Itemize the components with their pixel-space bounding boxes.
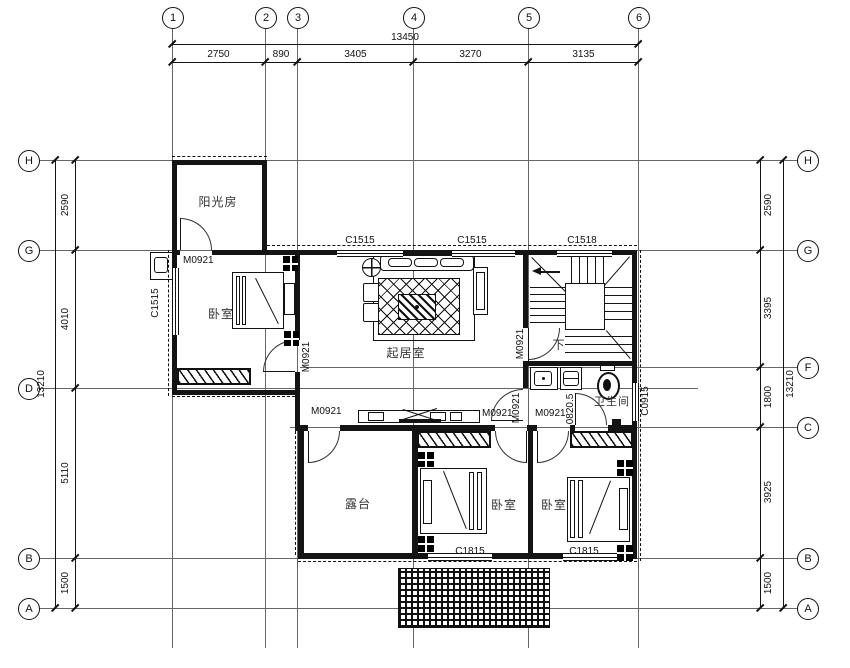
dim-right-seg: 1800 [764, 372, 774, 422]
dim-left-seg: 4010 [61, 294, 71, 344]
coffee-table-dot [415, 305, 419, 309]
wall [262, 160, 267, 250]
column-marker [418, 452, 434, 467]
door-label-m0820: 0820.5 [566, 384, 576, 434]
axis-bubble-G-left: G [18, 240, 40, 262]
room-label-bathroom: 卫生间 [588, 396, 636, 409]
room-label-bedroom: 卧室 [201, 308, 241, 321]
stair-tread [605, 311, 632, 312]
room-label-bedroom: 卧室 [534, 499, 574, 512]
column-marker [418, 536, 434, 552]
window-label-c1815: C1815 [450, 547, 490, 557]
door-leaf [308, 431, 309, 463]
dim-line-right-total [783, 160, 784, 608]
tv-cabinet-drawer [450, 412, 462, 421]
eave-dashed-line [298, 561, 637, 563]
sofa-cushion [388, 258, 412, 267]
door-leaf [526, 431, 527, 463]
wall-niche-inner [154, 257, 168, 273]
window-c1515 [172, 268, 179, 335]
dim-line-top-segments [172, 62, 638, 63]
wall [295, 372, 300, 431]
stair-tread [605, 295, 632, 296]
armchair-cushion [476, 272, 485, 310]
dim-top-seg: 3405 [333, 50, 378, 60]
window-c1515 [452, 250, 515, 257]
toilet-bowl-inner [603, 379, 611, 391]
stair-tread [595, 255, 596, 283]
axis-label: 1 [170, 12, 176, 24]
window-c1515 [337, 250, 403, 257]
washing-machine-line [563, 378, 579, 379]
stair-tread [530, 308, 565, 309]
door-arc [495, 431, 527, 463]
dresser [177, 368, 251, 385]
wall [172, 335, 177, 395]
dim-left-total: 13210 [37, 359, 47, 409]
dim-right-seg: 3395 [764, 283, 774, 333]
dim-top-seg: 2750 [196, 50, 241, 60]
stair-tread [605, 287, 632, 288]
axis-label: A [25, 603, 32, 615]
wall [212, 250, 337, 255]
axis-label: H [804, 155, 812, 167]
door-label-m0921: M0921 [302, 332, 312, 382]
axis-label: 4 [411, 12, 417, 24]
stair-tread [603, 255, 604, 283]
door-label-m0921: M0921 [311, 407, 357, 417]
stair-tread [530, 315, 565, 316]
eave-dashed-line [172, 156, 267, 158]
grid-line-2 [265, 28, 266, 648]
entrance-grille [398, 568, 550, 628]
dim-right-seg: 2590 [764, 180, 774, 230]
axis-bubble-A-left: A [18, 598, 40, 620]
axis-label: C [804, 422, 812, 434]
door-leaf [537, 431, 538, 463]
axis-label: G [804, 245, 813, 257]
axis-bubble-G-right: G [797, 240, 819, 262]
column-marker [617, 460, 633, 476]
door-arc [180, 218, 212, 250]
dim-top-total: 13450 [380, 33, 430, 43]
room-label-terrace: 露台 [336, 498, 380, 511]
wall [492, 553, 563, 559]
axis-bubble-H-right: H [797, 150, 819, 172]
door-leaf [263, 371, 295, 372]
axis-label: 3 [295, 12, 301, 24]
dim-line-top-total [172, 44, 638, 45]
axis-bubble-B-right: B [797, 548, 819, 570]
tv-cabinet-drawer [368, 412, 384, 421]
stair-tread [530, 301, 565, 302]
stair-direction-line [540, 271, 560, 273]
axis-label: 6 [636, 12, 642, 24]
axis-label: D [25, 383, 33, 395]
door-arc [308, 431, 340, 463]
wall [172, 160, 177, 250]
stair-tread [530, 294, 565, 295]
dim-left-seg: 2590 [61, 180, 71, 230]
window-label-c1515: C1515 [452, 236, 492, 246]
window-label-c0915: C0915 [641, 376, 651, 426]
eave-dashed-line [172, 396, 300, 398]
door-leaf [528, 328, 529, 361]
door-label-m0921: M0921 [512, 383, 522, 433]
wall [298, 431, 304, 555]
window-label-c1518: C1518 [562, 236, 602, 246]
floor-lamp-icon [362, 258, 381, 277]
wall [528, 431, 533, 553]
grid-line-H [38, 160, 798, 161]
axis-label: 5 [526, 12, 532, 24]
axis-bubble-B-left: B [18, 548, 40, 570]
axis-label: F [805, 362, 812, 374]
bed-pillow [477, 472, 482, 530]
stair-tread [565, 352, 632, 353]
wall [523, 250, 528, 328]
dim-right-seg: 3925 [764, 467, 774, 517]
column-marker [284, 331, 299, 346]
column-marker [283, 256, 298, 271]
door-label-m0921: M0921 [183, 256, 229, 266]
dim-line-right-segments [760, 160, 761, 608]
room-label-sunroom: 阳光房 [193, 196, 243, 209]
axis-label: H [25, 155, 33, 167]
stair-landing [565, 283, 605, 330]
door-arc [537, 431, 569, 463]
wall [528, 361, 637, 366]
stair-tread [565, 336, 632, 337]
room-label-bedroom: 卧室 [484, 499, 524, 512]
wall [172, 160, 267, 165]
window-c1518 [557, 250, 612, 257]
wall [412, 431, 418, 553]
window-label-c1515: C1515 [151, 278, 161, 328]
axis-bubble-5: 5 [518, 7, 540, 29]
stair-tread [565, 344, 632, 345]
door-label-m0921: M0921 [516, 319, 526, 369]
dim-right-seg: 1500 [764, 558, 774, 608]
axis-label: G [25, 245, 34, 257]
stair-tread [587, 255, 588, 283]
axis-label: B [804, 553, 811, 565]
room-label-down: 下 [551, 339, 567, 352]
axis-bubble-H-left: H [18, 150, 40, 172]
eave-dashed-line [295, 431, 297, 555]
bed-pillow [469, 472, 474, 530]
axis-bubble-F-right: F [797, 357, 819, 379]
axis-bubble-4: 4 [403, 7, 425, 29]
axis-bubble-A-right: A [797, 598, 819, 620]
stair-tread [571, 255, 572, 283]
floor-plan-drawing: 1 2 3 4 5 6 H G D B A H G F C B A 13450 … [0, 0, 850, 668]
wall [298, 553, 428, 559]
room-label-living: 起居室 [378, 347, 434, 360]
wall [172, 390, 300, 395]
door-leaf [180, 218, 181, 250]
grid-line-6 [638, 28, 639, 648]
dim-line-left-total [55, 160, 56, 608]
window-label-c1815: C1815 [564, 547, 604, 557]
dim-left-seg: 1500 [61, 558, 71, 608]
wardrobe [417, 431, 491, 448]
stair-arrow-icon [532, 267, 541, 275]
sofa-cushion [414, 258, 438, 267]
dim-right-total: 13210 [786, 359, 796, 409]
axis-bubble-C-right: C [797, 417, 819, 439]
stair-tread [605, 303, 632, 304]
bed-pillow [242, 276, 246, 325]
wardrobe [570, 431, 633, 448]
stair-tread [605, 319, 632, 320]
sofa-cushion [440, 258, 464, 267]
axis-label: B [25, 553, 32, 565]
nightstand [284, 283, 295, 315]
axis-label: 2 [263, 12, 269, 24]
sink-faucet-dot [542, 377, 545, 380]
stair-tread [579, 255, 580, 283]
column-marker [617, 545, 633, 561]
bed-bench [619, 488, 628, 530]
dim-left-seg: 5110 [61, 448, 71, 498]
bed-bench [423, 480, 432, 524]
axis-bubble-2: 2 [255, 7, 277, 29]
bed-pillow [578, 480, 583, 538]
axis-bubble-6: 6 [628, 7, 650, 29]
axis-bubble-1: 1 [162, 7, 184, 29]
wall [403, 250, 452, 255]
wall [515, 250, 557, 255]
axis-bubble-3: 3 [287, 7, 309, 29]
dim-top-seg: 3270 [448, 50, 493, 60]
stair-tread [530, 322, 565, 323]
dim-top-seg: 3135 [561, 50, 606, 60]
wall [632, 421, 637, 559]
window-label-c1515: C1515 [340, 236, 380, 246]
axis-label: A [804, 603, 811, 615]
